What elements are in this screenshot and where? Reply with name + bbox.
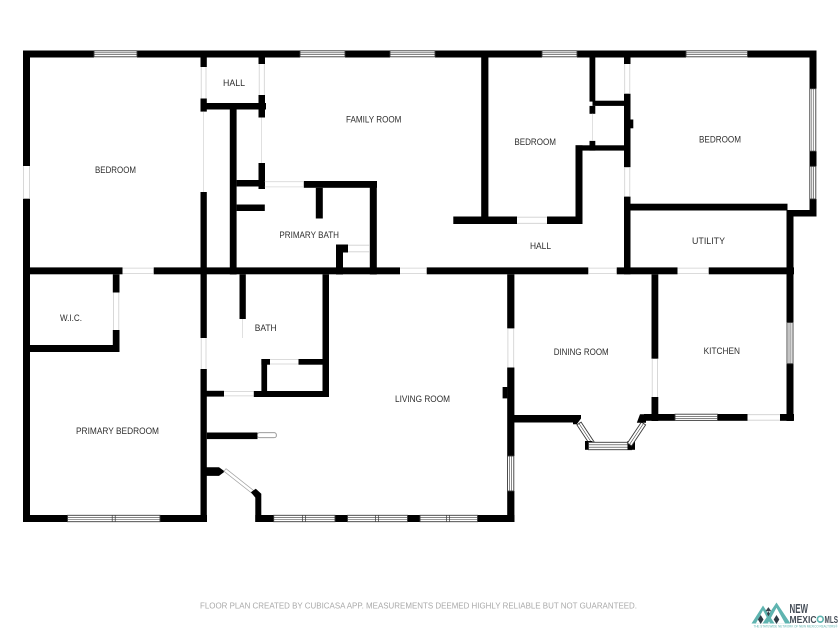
svg-text:BEDROOM: BEDROOM <box>95 165 136 175</box>
svg-text:UTILITY: UTILITY <box>692 236 725 246</box>
svg-text:FAMILY ROOM: FAMILY ROOM <box>346 114 402 124</box>
svg-text:FLOOR PLAN CREATED BY CUBICASA: FLOOR PLAN CREATED BY CUBICASA APP. MEAS… <box>200 602 637 611</box>
svg-text:LIVING ROOM: LIVING ROOM <box>395 394 450 404</box>
svg-text:KITCHEN: KITCHEN <box>704 346 740 356</box>
svg-text:BEDROOM: BEDROOM <box>699 135 741 145</box>
svg-text:BATH: BATH <box>255 323 277 333</box>
svg-text:DINING ROOM: DINING ROOM <box>554 347 609 357</box>
svg-text:PRIMARY BATH: PRIMARY BATH <box>279 230 339 240</box>
svg-text:HALL: HALL <box>223 78 245 88</box>
svg-text:BEDROOM: BEDROOM <box>514 137 556 147</box>
svg-text:THE STATEWIDE NETWORK OF NEW M: THE STATEWIDE NETWORK OF NEW MEXICO REAL… <box>754 624 838 628</box>
svg-text:NEW: NEW <box>790 602 809 616</box>
svg-text:PRIMARY BEDROOM: PRIMARY BEDROOM <box>76 426 159 436</box>
svg-text:W.I.C.: W.I.C. <box>60 313 82 323</box>
svg-text:HALL: HALL <box>530 241 551 251</box>
